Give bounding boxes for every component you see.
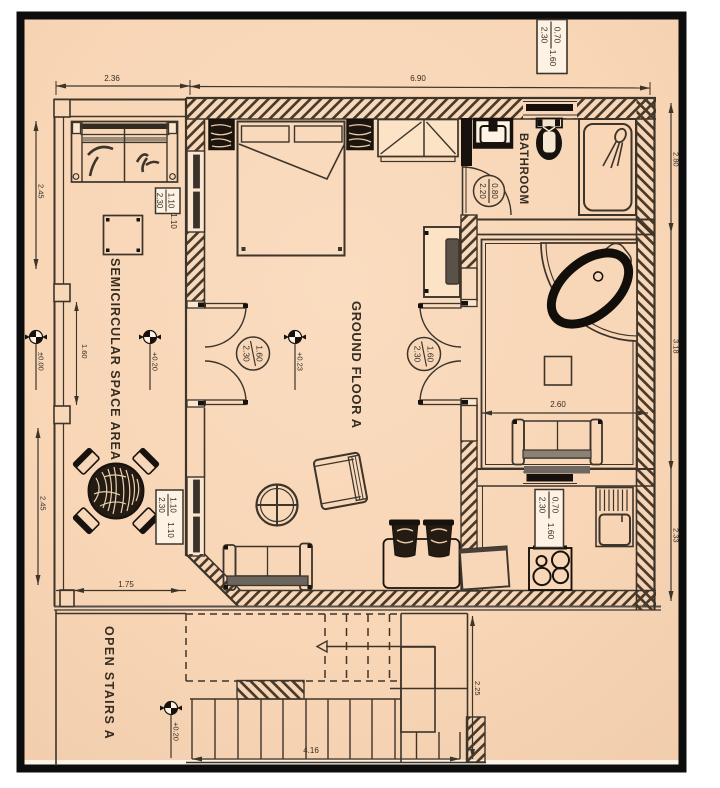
svg-text:BATHROOM: BATHROOM [517, 133, 529, 205]
svg-text:1.60: 1.60 [426, 346, 436, 363]
svg-text:2.45: 2.45 [39, 496, 48, 511]
svg-text:2.33: 2.33 [672, 528, 681, 543]
svg-text:2.30: 2.30 [242, 345, 252, 362]
svg-text:+0.20: +0.20 [151, 352, 160, 371]
svg-text:2.60: 2.60 [550, 400, 566, 409]
svg-text:1.75: 1.75 [118, 580, 134, 589]
svg-text:2.36: 2.36 [104, 74, 120, 83]
svg-text:2.30: 2.30 [538, 497, 548, 514]
svg-text:2.30: 2.30 [540, 27, 550, 44]
svg-text:0.80: 0.80 [490, 183, 499, 199]
svg-text:2.30: 2.30 [157, 497, 166, 513]
svg-text:1.60: 1.60 [548, 50, 558, 67]
svg-text:1.60: 1.60 [255, 345, 265, 362]
svg-text:2.30: 2.30 [413, 346, 423, 363]
svg-text:2.80: 2.80 [672, 152, 681, 167]
svg-text:1.60: 1.60 [80, 344, 89, 359]
svg-text:2.20: 2.20 [478, 183, 487, 199]
svg-text:0.70: 0.70 [551, 497, 561, 514]
svg-text:4.16: 4.16 [303, 746, 319, 755]
svg-text:1.60: 1.60 [546, 523, 556, 540]
svg-text:GROUND FLOOR A: GROUND FLOOR A [349, 301, 364, 429]
svg-text:2.45: 2.45 [37, 184, 46, 199]
svg-text:1.10: 1.10 [166, 522, 175, 538]
svg-text:1.10: 1.10 [169, 213, 178, 229]
svg-text:±0.00: ±0.00 [37, 352, 46, 371]
svg-text:0.70: 0.70 [553, 27, 563, 44]
svg-text:+0.20: +0.20 [172, 722, 181, 741]
svg-text:1.10: 1.10 [169, 497, 178, 513]
svg-text:2.30: 2.30 [155, 193, 164, 209]
svg-text:3.18: 3.18 [672, 339, 681, 354]
svg-text:6.90: 6.90 [410, 74, 426, 83]
svg-text:+0.23: +0.23 [296, 352, 305, 371]
svg-text:2.25: 2.25 [473, 681, 482, 696]
svg-text:SEMICIRCULAR SPACE AREA: SEMICIRCULAR SPACE AREA [108, 258, 122, 461]
svg-text:OPEN STAIRS A: OPEN STAIRS A [102, 626, 116, 740]
svg-text:1.10: 1.10 [167, 193, 176, 209]
